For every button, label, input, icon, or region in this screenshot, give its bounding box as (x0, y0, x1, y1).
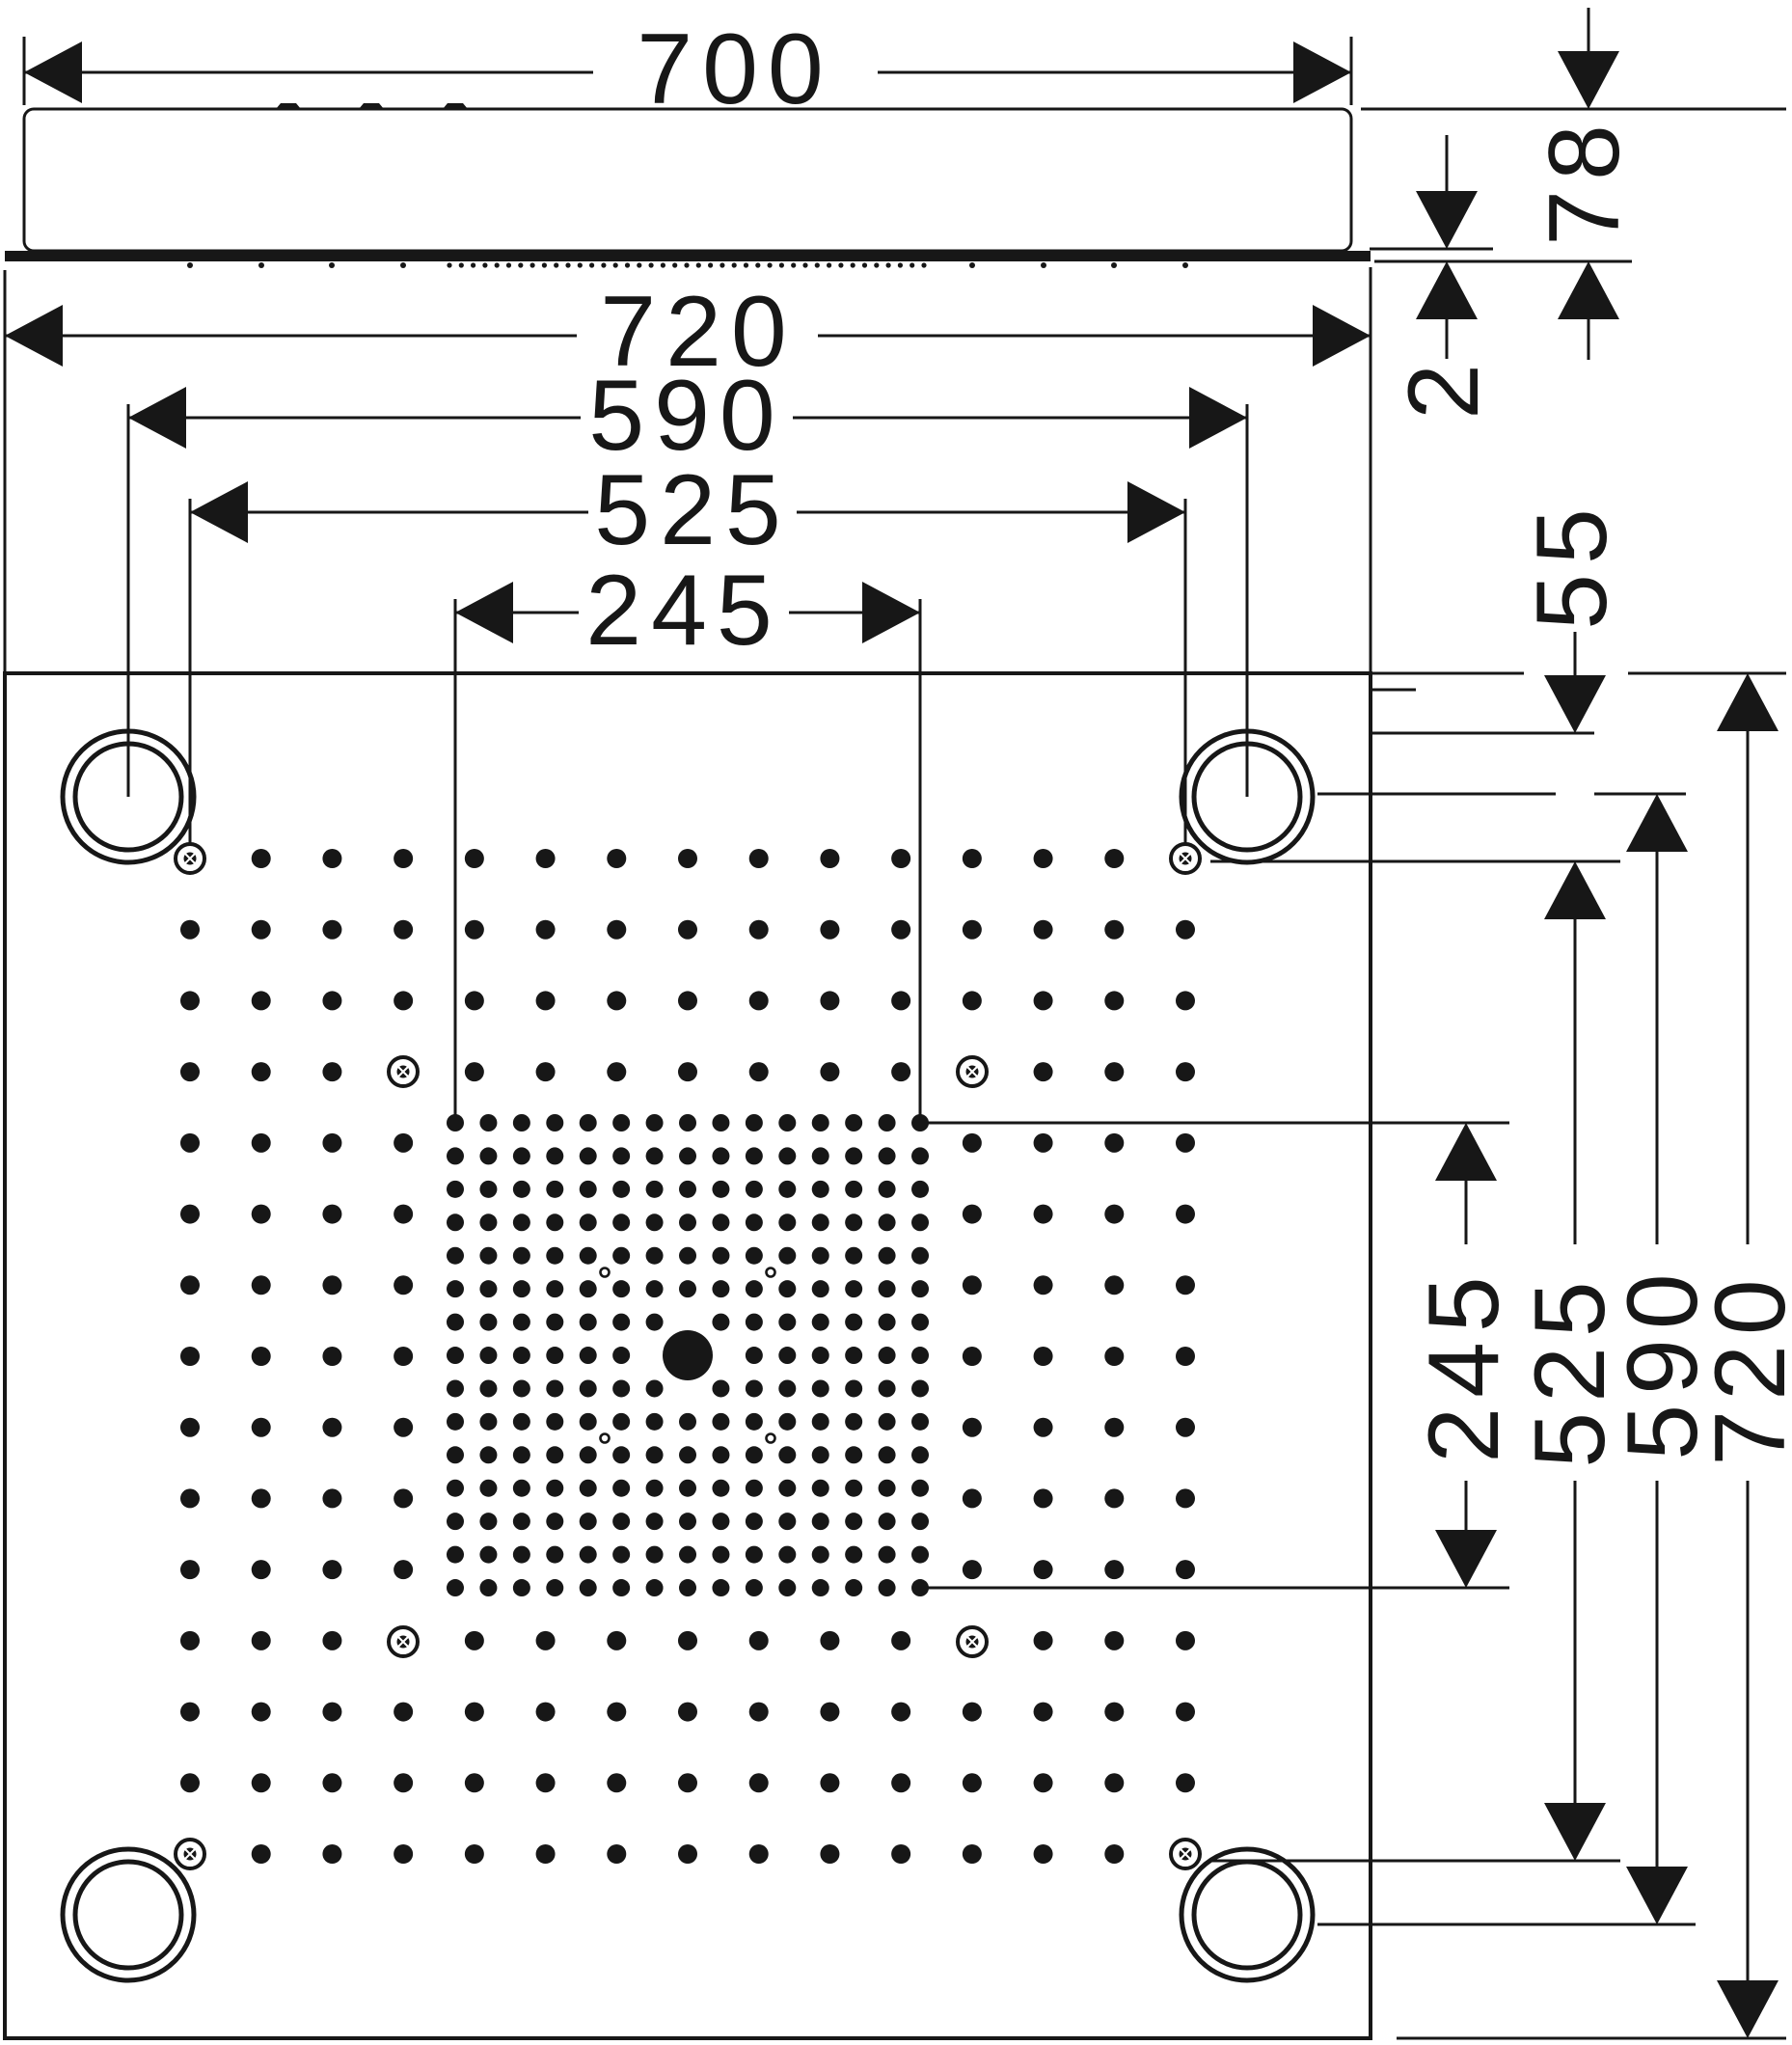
dense-nozzle-dot (580, 1513, 597, 1530)
dense-nozzle-dot (778, 1147, 796, 1164)
nozzle-dot (1034, 1347, 1053, 1366)
nozzle-stub (684, 262, 689, 267)
dense-nozzle-dot (646, 1314, 664, 1331)
nozzle-dot (1104, 1560, 1124, 1579)
dense-nozzle-dot (513, 1446, 530, 1463)
nozzle-dot (322, 991, 341, 1010)
nozzle-dot (607, 849, 626, 868)
dense-nozzle-dot (911, 1513, 929, 1530)
dense-nozzle-dot (479, 1480, 497, 1497)
dimension-arrowhead (1717, 673, 1778, 731)
nozzle-dot (322, 1488, 341, 1508)
nozzle-stub (530, 262, 535, 267)
nozzle-stub (815, 262, 820, 267)
dense-nozzle-dot (447, 1513, 464, 1530)
dense-nozzle-dot (879, 1413, 896, 1431)
dimension-arrowhead (1127, 481, 1185, 543)
dense-nozzle-dot (447, 1114, 464, 1132)
nozzle-dot (820, 1062, 839, 1081)
dimension-arrowhead (1416, 261, 1478, 319)
dense-nozzle-dot (679, 1280, 696, 1297)
dense-nozzle-dot (546, 1314, 563, 1331)
nozzle-dot (322, 1844, 341, 1864)
dimension-arrowhead (1544, 675, 1606, 733)
dim-label-vertical-720: 720 (1700, 1269, 1792, 1466)
nozzle-stub (755, 262, 760, 267)
nozzle-stub (779, 262, 784, 267)
nozzle-stub (625, 262, 630, 267)
dense-nozzle-dot (712, 1280, 729, 1297)
nozzle-dot (252, 991, 271, 1010)
dimension-arrowhead (1626, 794, 1688, 852)
nozzle-dot (1176, 991, 1195, 1010)
nozzle-dot (322, 920, 341, 940)
nozzle-stub (554, 262, 558, 267)
dimension-arrowhead (1435, 1530, 1497, 1588)
dense-nozzle-dot (746, 1513, 763, 1530)
dense-nozzle-dot (646, 1413, 664, 1431)
dense-nozzle-dot (646, 1480, 664, 1497)
nozzle-dot (749, 849, 769, 868)
nozzle-dot (678, 849, 697, 868)
dense-nozzle-dot (679, 1147, 696, 1164)
nozzle-dot (180, 1488, 200, 1508)
nozzle-dot (1104, 1133, 1124, 1153)
nozzle-dot (891, 849, 910, 868)
dense-nozzle-dot (447, 1446, 464, 1463)
nozzle-dot (678, 1844, 697, 1864)
dense-nozzle-dot (580, 1181, 597, 1198)
nozzle-stub (744, 262, 748, 267)
nozzle-dot (1104, 1062, 1124, 1081)
dense-nozzle-dot (546, 1347, 563, 1364)
nozzle-dot (536, 920, 556, 940)
nozzle-stub (329, 262, 335, 268)
nozzle-dot (1034, 849, 1053, 868)
dimension-arrowhead (1558, 261, 1619, 319)
dense-nozzle-dot (546, 1181, 563, 1198)
nozzle-dot (1034, 1275, 1053, 1295)
nozzle-stub (862, 262, 867, 267)
pilot-hole-ring (601, 1434, 610, 1443)
nozzle-dot (607, 1062, 626, 1081)
nozzle-dot (963, 1347, 982, 1366)
dense-nozzle-dot (479, 1247, 497, 1265)
nozzle-dot (252, 1631, 271, 1650)
dense-nozzle-dot (911, 1579, 929, 1596)
nozzle-dot (394, 920, 413, 940)
dense-nozzle-dot (845, 1280, 862, 1297)
dense-nozzle-dot (845, 1579, 862, 1596)
nozzle-dot (322, 1418, 341, 1437)
nozzle-stub (827, 262, 831, 267)
nozzle-stub (495, 262, 500, 267)
nozzle-dot (252, 1560, 271, 1579)
dense-nozzle-dot (646, 1213, 664, 1231)
dense-nozzle-dot (879, 1280, 896, 1297)
dimension-arrowhead (190, 481, 248, 543)
dim-label-height-78: 78 (1534, 115, 1635, 246)
nozzle-dot (1176, 1631, 1195, 1650)
dense-nozzle-dot (513, 1513, 530, 1530)
nozzle-dot (1104, 1347, 1124, 1366)
dense-nozzle-dot (712, 1147, 729, 1164)
nozzle-dot (322, 1133, 341, 1153)
dense-nozzle-dot (546, 1213, 563, 1231)
dense-nozzle-dot (447, 1546, 464, 1564)
nozzle-stub (838, 262, 843, 267)
nozzle-dot (322, 1347, 341, 1366)
dense-nozzle-dot (580, 1247, 597, 1265)
dense-nozzle-dot (879, 1446, 896, 1463)
nozzle-stub (482, 262, 487, 267)
nozzle-dot (749, 1631, 769, 1650)
dense-nozzle-dot (812, 1314, 829, 1331)
dense-nozzle-dot (879, 1213, 896, 1231)
dimension-arrowhead (455, 582, 513, 643)
shower-head-dimension-drawing: 700 720 590 525 245 78 2 55 245 525 590 … (0, 0, 1792, 2045)
nozzle-dot (607, 1631, 626, 1650)
dense-nozzle-dot (879, 1379, 896, 1397)
dense-nozzle-dot (879, 1314, 896, 1331)
dense-nozzle-dot (778, 1213, 796, 1231)
nozzle-dot (1176, 1773, 1195, 1792)
dense-nozzle-dot (546, 1280, 563, 1297)
dense-nozzle-dot (612, 1347, 630, 1364)
nozzle-dot (1104, 991, 1124, 1010)
nozzle-dot (891, 1844, 910, 1864)
dense-nozzle-dot (479, 1213, 497, 1231)
nozzle-dot (1104, 849, 1124, 868)
drawing-canvas (0, 0, 1792, 2045)
dense-nozzle-dot (513, 1280, 530, 1297)
dense-nozzle-dot (612, 1213, 630, 1231)
nozzle-stub (768, 262, 773, 267)
dense-nozzle-dot (812, 1280, 829, 1297)
dense-nozzle-dot (911, 1114, 929, 1132)
nozzle-dot (180, 1347, 200, 1366)
nozzle-stub (661, 262, 665, 267)
dense-nozzle-dot (612, 1446, 630, 1463)
dense-nozzle-dot (479, 1446, 497, 1463)
dense-nozzle-dot (712, 1213, 729, 1231)
dense-nozzle-dot (911, 1480, 929, 1497)
dense-nozzle-dot (911, 1413, 929, 1431)
dense-nozzle-dot (911, 1446, 929, 1463)
nozzle-dot (891, 1062, 910, 1081)
dense-nozzle-dot (580, 1579, 597, 1596)
nozzle-dot (252, 1347, 271, 1366)
dense-nozzle-dot (679, 1446, 696, 1463)
nozzle-dot (749, 1844, 769, 1864)
dense-nozzle-dot (646, 1546, 664, 1564)
dense-nozzle-dot (746, 1114, 763, 1132)
dimension-arrowhead (862, 582, 920, 643)
nozzle-dot (963, 1844, 982, 1864)
dense-nozzle-dot (580, 1446, 597, 1463)
nozzle-dot (1104, 1703, 1124, 1722)
dense-nozzle-dot (778, 1114, 796, 1132)
nozzle-stub (589, 262, 594, 267)
nozzle-dot (963, 1560, 982, 1579)
nozzle-dot (1176, 1133, 1195, 1153)
dense-nozzle-dot (746, 1280, 763, 1297)
dense-nozzle-dot (612, 1181, 630, 1198)
nozzle-dot (394, 849, 413, 868)
nozzle-dot (465, 1631, 484, 1650)
nozzle-stub (649, 262, 654, 267)
dense-nozzle-dot (447, 1247, 464, 1265)
dense-nozzle-dot (646, 1114, 664, 1132)
dimension-arrowhead (1293, 41, 1351, 103)
dense-nozzle-dot (746, 1247, 763, 1265)
dense-nozzle-dot (845, 1513, 862, 1530)
dense-nozzle-dot (746, 1147, 763, 1164)
nozzle-dot (180, 1560, 200, 1579)
dense-nozzle-dot (513, 1247, 530, 1265)
nozzle-stub (791, 262, 796, 267)
nozzle-stub (696, 262, 701, 267)
dense-nozzle-dot (879, 1480, 896, 1497)
nozzle-dot (252, 1488, 271, 1508)
nozzle-dot (1176, 1703, 1195, 1722)
nozzle-dot (180, 1703, 200, 1722)
inlet-connector-bump (443, 103, 468, 109)
dense-nozzle-dot (447, 1379, 464, 1397)
dense-nozzle-dot (812, 1213, 829, 1231)
dense-nozzle-dot (513, 1579, 530, 1596)
dim-label-width-245: 245 (585, 560, 782, 661)
dense-nozzle-dot (646, 1513, 664, 1530)
nozzle-stub (613, 262, 618, 267)
dimension-arrowhead (1313, 305, 1371, 367)
dense-nozzle-dot (778, 1546, 796, 1564)
nozzle-dot (536, 1631, 556, 1650)
nozzle-dot (536, 1773, 556, 1792)
nozzle-dot (1104, 1418, 1124, 1437)
dim-label-lip-2: 2 (1394, 354, 1494, 420)
dense-nozzle-dot (679, 1480, 696, 1497)
dense-nozzle-dot (447, 1413, 464, 1431)
dense-nozzle-dot (712, 1546, 729, 1564)
dense-nozzle-dot (546, 1147, 563, 1164)
nozzle-dot (749, 1703, 769, 1722)
dense-nozzle-dot (646, 1379, 664, 1397)
nozzle-dot (963, 1275, 982, 1295)
nozzle-dot (536, 849, 556, 868)
dense-nozzle-dot (879, 1513, 896, 1530)
dense-nozzle-dot (580, 1347, 597, 1364)
nozzle-dot (1176, 1488, 1195, 1508)
dense-nozzle-dot (679, 1114, 696, 1132)
nozzle-stub (921, 262, 926, 267)
dense-nozzle-dot (879, 1579, 896, 1596)
center-nozzle (663, 1330, 713, 1380)
dense-nozzle-dot (679, 1213, 696, 1231)
nozzle-dot (180, 991, 200, 1010)
dense-nozzle-dot (646, 1181, 664, 1198)
dense-nozzle-dot (778, 1181, 796, 1198)
dense-nozzle-dot (911, 1181, 929, 1198)
nozzle-dot (252, 849, 271, 868)
nozzle-dot (1034, 920, 1053, 940)
dense-nozzle-dot (778, 1379, 796, 1397)
dense-nozzle-dot (513, 1347, 530, 1364)
nozzle-stub (459, 262, 464, 267)
dense-nozzle-dot (447, 1314, 464, 1331)
dense-nozzle-dot (845, 1446, 862, 1463)
dense-nozzle-dot (812, 1181, 829, 1198)
dense-nozzle-dot (911, 1379, 929, 1397)
nozzle-dot (252, 1205, 271, 1224)
dense-nozzle-dot (646, 1579, 664, 1596)
nozzle-stub (1041, 262, 1046, 268)
nozzle-dot (252, 1773, 271, 1792)
nozzle-dot (749, 1773, 769, 1792)
nozzle-dot (749, 991, 769, 1010)
dimension-arrowhead (1717, 1980, 1778, 2038)
nozzle-dot (465, 1703, 484, 1722)
dense-nozzle-dot (546, 1579, 563, 1596)
dense-nozzle-dot (911, 1314, 929, 1331)
dense-nozzle-dot (778, 1247, 796, 1265)
nozzle-dot (1034, 1703, 1053, 1722)
dense-nozzle-dot (911, 1247, 929, 1265)
nozzle-dot (1176, 1062, 1195, 1081)
nozzle-dot (394, 1844, 413, 1864)
nozzle-dot (820, 1703, 839, 1722)
nozzle-dot (678, 991, 697, 1010)
dense-nozzle-dot (746, 1546, 763, 1564)
dense-nozzle-dot (845, 1347, 862, 1364)
dense-nozzle-dot (911, 1213, 929, 1231)
nozzle-dot (394, 1703, 413, 1722)
dense-nozzle-dot (479, 1579, 497, 1596)
dense-nozzle-dot (580, 1546, 597, 1564)
nozzle-dot (820, 991, 839, 1010)
dim-label-width-700: 700 (637, 19, 833, 120)
dense-nozzle-dot (746, 1480, 763, 1497)
dense-nozzle-dot (447, 1480, 464, 1497)
dense-nozzle-dot (845, 1181, 862, 1198)
dense-nozzle-dot (513, 1480, 530, 1497)
nozzle-dot (465, 1773, 484, 1792)
dense-nozzle-dot (712, 1480, 729, 1497)
nozzle-dot (322, 1205, 341, 1224)
dense-nozzle-dot (479, 1347, 497, 1364)
nozzle-dot (963, 920, 982, 940)
nozzle-dot (1176, 920, 1195, 940)
nozzle-stub (886, 262, 891, 267)
dense-nozzle-dot (845, 1413, 862, 1431)
dense-nozzle-dot (546, 1446, 563, 1463)
nozzle-dot (1104, 1205, 1124, 1224)
nozzle-dot (963, 1488, 982, 1508)
pilot-hole-ring (767, 1434, 775, 1443)
nozzle-dot (394, 1418, 413, 1437)
nozzle-dot (678, 1703, 697, 1722)
dense-nozzle-dot (712, 1181, 729, 1198)
dense-nozzle-dot (746, 1379, 763, 1397)
nozzle-dot (678, 1631, 697, 1650)
dense-nozzle-dot (845, 1480, 862, 1497)
nozzle-dot (1034, 1062, 1053, 1081)
dimension-arrowhead (1416, 191, 1478, 249)
nozzle-stub (471, 262, 475, 267)
nozzle-stub (732, 262, 737, 267)
nozzle-dot (252, 920, 271, 940)
dense-nozzle-dot (612, 1546, 630, 1564)
nozzle-dot (394, 1560, 413, 1579)
dense-nozzle-dot (447, 1280, 464, 1297)
nozzle-dot (1034, 1488, 1053, 1508)
nozzle-dot (252, 1133, 271, 1153)
nozzle-stub (720, 262, 724, 267)
dense-nozzle-dot (845, 1379, 862, 1397)
nozzle-stub (565, 262, 570, 267)
nozzle-dot (465, 1062, 484, 1081)
dense-nozzle-dot (712, 1579, 729, 1596)
dimension-arrowhead (24, 41, 82, 103)
dense-nozzle-dot (845, 1314, 862, 1331)
dense-nozzle-dot (812, 1480, 829, 1497)
dense-nozzle-dot (513, 1314, 530, 1331)
dense-nozzle-dot (778, 1413, 796, 1431)
nozzle-dot (180, 920, 200, 940)
dense-nozzle-dot (911, 1147, 929, 1164)
nozzle-dot (394, 1275, 413, 1295)
nozzle-dot (252, 1062, 271, 1081)
nozzle-dot (963, 1205, 982, 1224)
dense-nozzle-dot (546, 1247, 563, 1265)
dense-nozzle-dot (812, 1413, 829, 1431)
nozzle-stub (672, 262, 677, 267)
dense-nozzle-dot (679, 1579, 696, 1596)
dimension-arrowhead (5, 305, 63, 367)
dim-label-vertical-245: 245 (1414, 1267, 1514, 1463)
nozzle-dot (891, 1773, 910, 1792)
nozzle-stub (1182, 262, 1188, 268)
dense-nozzle-dot (447, 1147, 464, 1164)
nozzle-dot (749, 1062, 769, 1081)
nozzle-stub (1111, 262, 1117, 268)
dense-nozzle-dot (612, 1379, 630, 1397)
nozzle-dot (1034, 1418, 1053, 1437)
dense-nozzle-dot (479, 1513, 497, 1530)
nozzle-dot (1034, 1560, 1053, 1579)
nozzle-dot (536, 1062, 556, 1081)
dense-nozzle-dot (479, 1314, 497, 1331)
nozzle-dot (1176, 1418, 1195, 1437)
dimension-arrowhead (128, 387, 186, 449)
dense-nozzle-dot (879, 1347, 896, 1364)
dense-nozzle-dot (746, 1181, 763, 1198)
dense-nozzle-dot (746, 1446, 763, 1463)
dimension-arrowhead (1544, 1803, 1606, 1861)
nozzle-dot (607, 991, 626, 1010)
nozzle-dot (252, 1703, 271, 1722)
nozzle-dot (180, 1062, 200, 1081)
dense-nozzle-dot (546, 1379, 563, 1397)
nozzle-dot (607, 1773, 626, 1792)
dense-nozzle-dot (513, 1379, 530, 1397)
dense-nozzle-dot (612, 1314, 630, 1331)
dense-nozzle-dot (911, 1347, 929, 1364)
dense-nozzle-dot (746, 1347, 763, 1364)
dense-nozzle-dot (612, 1280, 630, 1297)
nozzle-dot (891, 1631, 910, 1650)
dense-nozzle-dot (812, 1513, 829, 1530)
